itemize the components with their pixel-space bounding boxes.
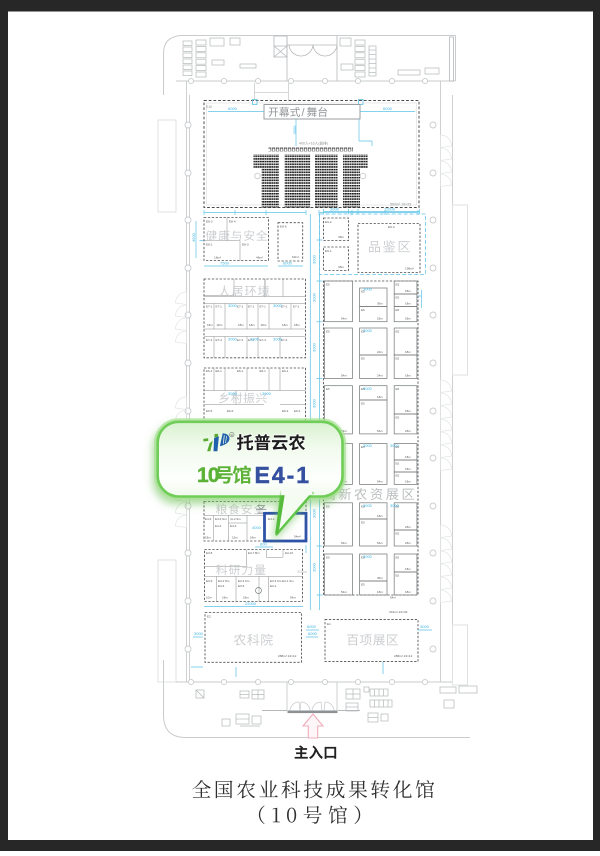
svg-text:18m: 18m	[405, 467, 411, 471]
svg-text:54m: 54m	[341, 590, 347, 594]
svg-text:18m: 18m	[377, 395, 383, 399]
svg-text:E3-10: E3-10	[285, 551, 293, 555]
svg-text:E6-4: E6-4	[294, 409, 301, 413]
svg-text:18m: 18m	[217, 323, 223, 327]
svg-text:E4-3: E4-3	[230, 524, 237, 528]
svg-text:E5: E5	[396, 574, 400, 578]
svg-text:E6-1: E6-1	[206, 369, 213, 373]
svg-text:3000: 3000	[262, 391, 272, 396]
svg-text:62m²: 62m²	[292, 255, 299, 259]
svg-text:E6-3: E6-3	[282, 409, 289, 413]
svg-text:3000: 3000	[363, 554, 373, 559]
svg-text:E6-5: E6-5	[206, 409, 213, 413]
svg-text:E7-4: E7-4	[206, 338, 213, 342]
svg-text:54m: 54m	[377, 429, 383, 433]
svg-text:18m: 18m	[405, 374, 411, 378]
svg-text:E3-2 8m: E3-2 8m	[218, 579, 230, 583]
svg-text:18m: 18m	[405, 289, 411, 293]
svg-text:18m: 18m	[205, 536, 211, 540]
svg-text:18m: 18m	[282, 323, 288, 327]
svg-text:E7-1: E7-1	[206, 305, 213, 309]
svg-text:E5: E5	[361, 357, 365, 361]
svg-text:E5: E5	[396, 532, 400, 536]
svg-text:6000: 6000	[308, 631, 318, 636]
svg-text:22000: 22000	[245, 601, 257, 606]
svg-text:3000: 3000	[312, 292, 317, 302]
svg-text:E7-4: E7-4	[237, 338, 244, 342]
svg-text:18m: 18m	[222, 596, 228, 600]
svg-text:18m: 18m	[261, 323, 267, 327]
svg-text:18m²: 18m²	[214, 256, 221, 260]
svg-text:E5: E5	[326, 283, 330, 287]
svg-text:18m: 18m	[405, 302, 411, 306]
svg-text:E5: E5	[326, 504, 330, 508]
svg-text:E7-1: E7-1	[281, 305, 288, 309]
svg-text:300m: 300m	[297, 569, 308, 574]
svg-text:10m: 10m	[206, 596, 212, 600]
svg-text:15m: 15m	[232, 536, 238, 540]
svg-text:3000: 3000	[228, 303, 238, 308]
svg-text:18m: 18m	[377, 590, 383, 594]
svg-text:288m² 24×12: 288m² 24×12	[394, 654, 413, 658]
svg-text:3000: 3000	[312, 508, 317, 518]
svg-text:3000: 3000	[312, 398, 317, 408]
svg-text:54m: 54m	[341, 317, 347, 321]
svg-text:18m: 18m	[405, 429, 411, 433]
svg-text:46m²: 46m²	[256, 256, 263, 260]
svg-text:3000: 3000	[273, 336, 283, 341]
svg-text:24m: 24m	[377, 374, 383, 378]
svg-text:18m: 18m	[238, 323, 244, 327]
svg-text:(A-2 9m: (A-2 9m	[230, 517, 241, 521]
svg-text:288m² 24×12: 288m² 24×12	[278, 654, 297, 658]
svg-text:3000: 3000	[363, 503, 373, 508]
svg-text:E7-1: E7-1	[260, 305, 267, 309]
svg-text:E7-4: E7-4	[260, 338, 267, 342]
svg-text:E8-4: E8-4	[229, 220, 236, 224]
svg-text:6000: 6000	[283, 261, 293, 266]
svg-text:54m²: 54m²	[294, 535, 301, 539]
svg-text:E5: E5	[396, 462, 400, 466]
svg-text:4500: 4500	[191, 232, 196, 242]
svg-text:18m: 18m	[377, 514, 383, 518]
svg-text:3000: 3000	[363, 287, 373, 292]
svg-text:E9-2: E9-2	[325, 220, 332, 224]
svg-text:36m: 36m	[377, 302, 383, 306]
svg-text:E5: E5	[396, 556, 400, 560]
svg-text:54m: 54m	[341, 541, 347, 545]
svg-text:E3-3 9m E3-1 9m: E3-3 9m E3-1 9m	[270, 579, 294, 583]
svg-text:36m: 36m	[377, 576, 383, 580]
svg-text:3000: 3000	[390, 503, 400, 508]
svg-text:54m: 54m	[377, 479, 383, 483]
svg-text:E7-4: E7-4	[281, 338, 288, 342]
svg-text:E4-4: E4-4	[215, 524, 222, 528]
svg-text:E3-1: E3-1	[270, 584, 277, 588]
svg-text:E6-1: E6-1	[282, 369, 289, 373]
svg-text:E7-1: E7-1	[237, 305, 244, 309]
svg-text:E2: E2	[207, 615, 211, 619]
svg-text:3000: 3000	[420, 624, 430, 629]
svg-text:E5: E5	[396, 296, 400, 300]
svg-text:18m: 18m	[405, 525, 411, 529]
svg-text:11000: 11000	[384, 207, 396, 212]
svg-text:E1: E1	[327, 622, 331, 626]
svg-text:18m: 18m	[294, 323, 300, 327]
svg-text:E5: E5	[361, 402, 365, 406]
svg-text:196m²: 196m²	[405, 267, 414, 271]
svg-text:3000: 3000	[228, 336, 238, 341]
svg-text:E4-5 Nm: E4-5 Nm	[215, 517, 227, 521]
svg-text:3000: 3000	[330, 207, 340, 212]
svg-text:E6-1: E6-1	[216, 369, 223, 373]
svg-text:E5: E5	[396, 283, 400, 287]
svg-text:3000: 3000	[250, 336, 260, 341]
svg-text:3000: 3000	[363, 328, 373, 333]
svg-text:E5: E5	[326, 387, 330, 391]
svg-text:E8-2: E8-2	[206, 220, 213, 224]
svg-text:E5: E5	[361, 583, 365, 587]
svg-text:18m: 18m	[405, 590, 411, 594]
svg-text:3000: 3000	[292, 125, 297, 135]
svg-text:4000: 4000	[252, 525, 262, 530]
svg-text:E5: E5	[396, 474, 400, 478]
svg-text:36m: 36m	[338, 235, 344, 239]
svg-text:E6-1: E6-1	[237, 369, 244, 373]
svg-text:600: 600	[260, 542, 267, 547]
svg-text:E5: E5	[361, 308, 365, 312]
svg-text:18m: 18m	[405, 409, 411, 413]
svg-text:E6-6: E6-6	[227, 409, 234, 413]
svg-text:E9-3: E9-3	[388, 225, 395, 229]
svg-text:E5: E5	[326, 330, 330, 334]
svg-text:E4-1: E4-1	[268, 517, 275, 521]
svg-text:E3-7 Bm: E3-7 Bm	[248, 551, 260, 555]
svg-text:E10: E10	[206, 105, 212, 109]
svg-text:E7-1: E7-1	[248, 305, 255, 309]
svg-text:10: 10	[197, 464, 219, 487]
svg-text:18m: 18m	[405, 567, 411, 571]
svg-text:E9-1: E9-1	[325, 249, 332, 253]
svg-text:E7-4: E7-4	[216, 338, 223, 342]
svg-text:E3-6: E3-6	[218, 584, 225, 588]
svg-text:7500: 7500	[220, 261, 230, 266]
svg-text:E5: E5	[396, 387, 400, 391]
svg-text:36m: 36m	[338, 265, 344, 269]
svg-text:6000: 6000	[383, 106, 393, 111]
svg-text:E5: E5	[396, 416, 400, 420]
svg-text:301m² 24×46: 301m² 24×46	[389, 610, 408, 614]
svg-text:E4-6: E4-6	[205, 517, 212, 521]
svg-text:E7-1: E7-1	[293, 305, 300, 309]
svg-text:E3-4 9m: E3-4 9m	[238, 579, 250, 583]
svg-text:3000: 3000	[363, 386, 373, 391]
svg-text:E8-1: E8-1	[206, 243, 213, 247]
svg-text:3000: 3000	[312, 562, 317, 572]
svg-text:E5: E5	[396, 357, 400, 361]
svg-text:18m: 18m	[250, 536, 256, 540]
svg-text:E6-1: E6-1	[260, 369, 267, 373]
svg-text:18m: 18m	[377, 317, 383, 321]
svg-text:E3-5: E3-5	[238, 584, 245, 588]
svg-text:18m: 18m	[405, 479, 411, 483]
svg-text:E5: E5	[396, 330, 400, 334]
svg-text:6000: 6000	[228, 106, 238, 111]
svg-text:E3-8: E3-8	[206, 551, 213, 555]
svg-text:E8-3: E8-3	[242, 243, 249, 247]
svg-text:18m: 18m	[249, 323, 255, 327]
svg-text:E5: E5	[396, 308, 400, 312]
svg-text:3000: 3000	[228, 391, 238, 396]
svg-text:E4-1: E4-1	[255, 462, 312, 488]
svg-text:E7-1: E7-1	[216, 305, 223, 309]
svg-text:54m: 54m	[290, 596, 296, 600]
svg-text:3000: 3000	[312, 342, 317, 352]
svg-text:54m: 54m	[341, 374, 347, 378]
svg-text:18m: 18m	[243, 596, 249, 600]
svg-text:18m: 18m	[405, 350, 411, 354]
svg-text:54m: 54m	[390, 596, 396, 600]
svg-text:54m: 54m	[377, 541, 383, 545]
svg-text:18m: 18m	[207, 323, 213, 327]
svg-text:18m: 18m	[405, 455, 411, 459]
svg-text:400人+16人(前排): 400人+16人(前排)	[299, 141, 328, 146]
svg-text:E5: E5	[326, 556, 330, 560]
svg-text:3000: 3000	[390, 443, 400, 448]
svg-text:3000: 3000	[363, 443, 373, 448]
svg-text:6000: 6000	[307, 624, 317, 629]
svg-text:3000: 3000	[273, 303, 283, 308]
svg-text:3000: 3000	[312, 254, 317, 264]
svg-text:18m: 18m	[405, 541, 411, 545]
svg-text:E5: E5	[361, 521, 365, 525]
svg-text:E8-6: E8-6	[280, 225, 287, 229]
svg-text:3000: 3000	[194, 631, 204, 636]
svg-text:24m: 24m	[377, 350, 383, 354]
svg-text:18m: 18m	[405, 317, 411, 321]
svg-text:E3-9: E3-9	[206, 579, 213, 583]
